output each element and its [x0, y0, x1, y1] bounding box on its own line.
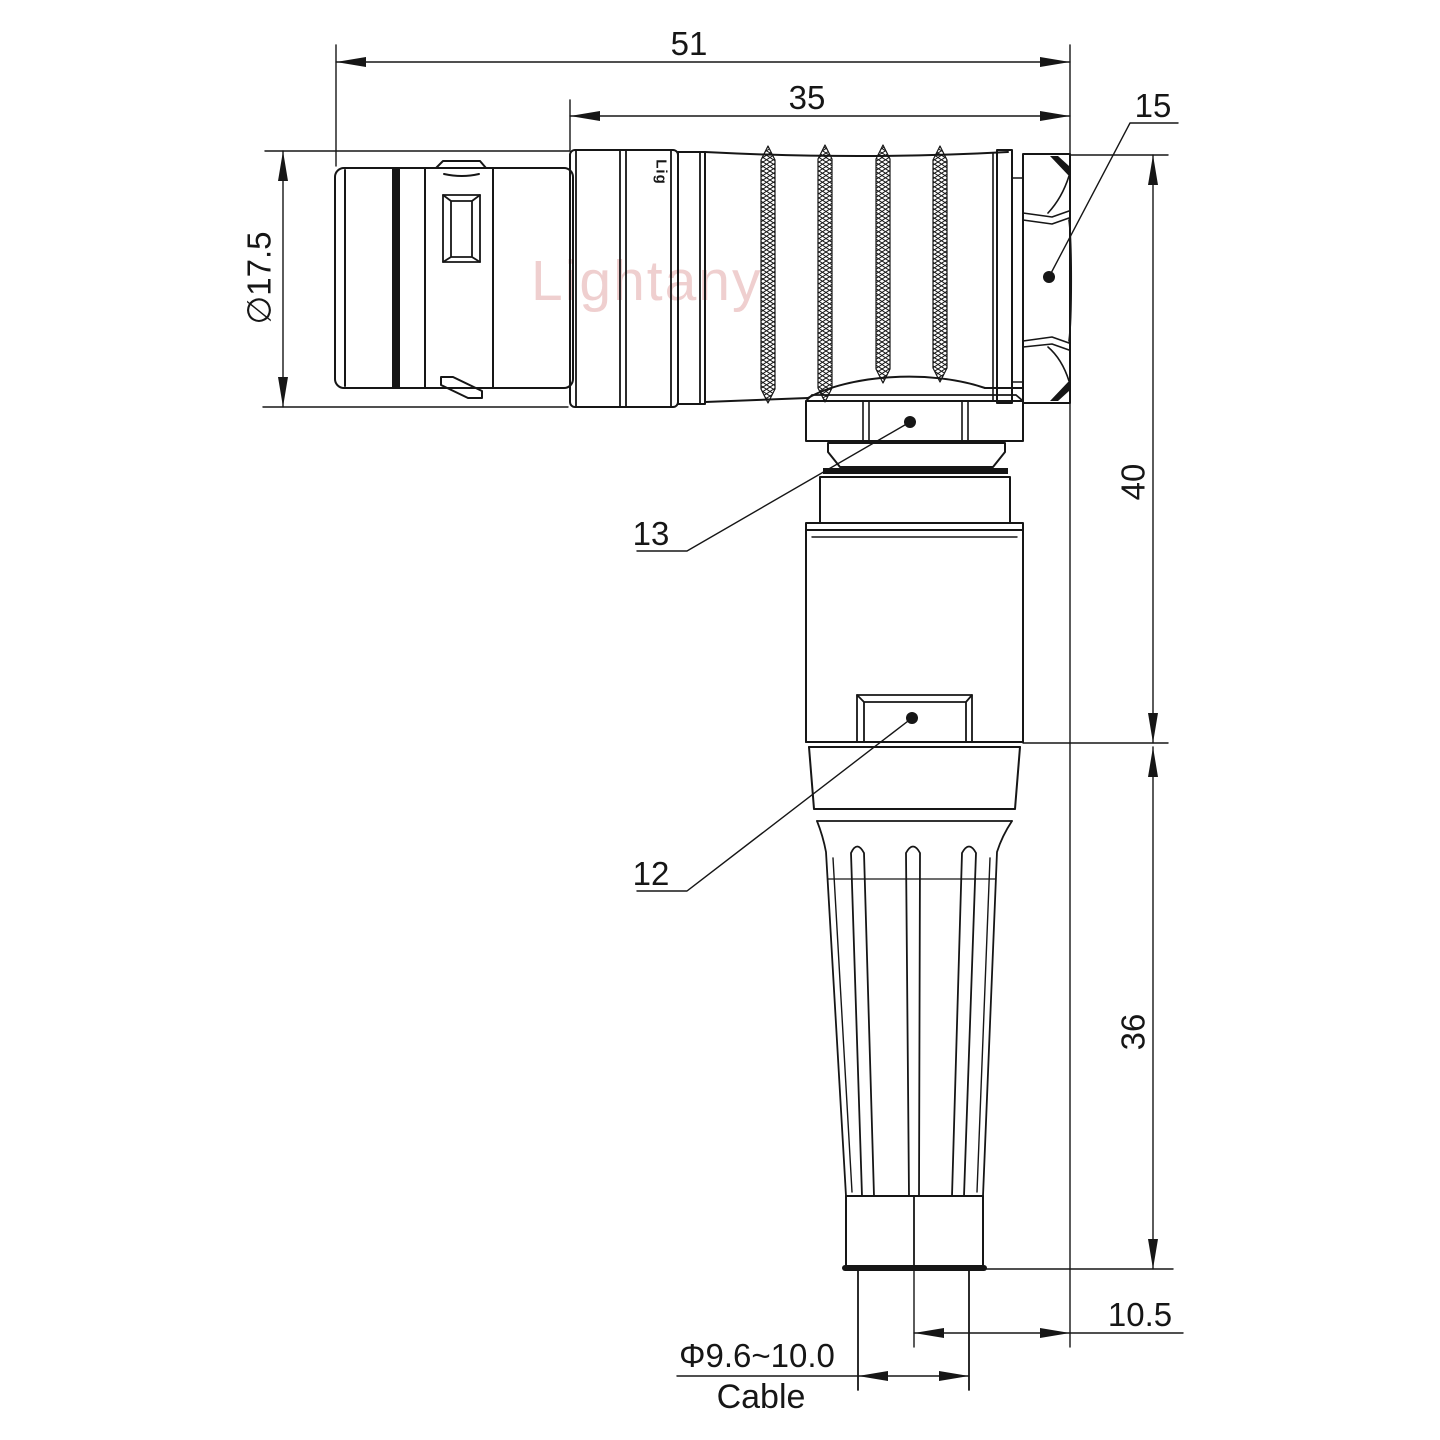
- grip-bottom-edge: [705, 398, 808, 402]
- boot-groove-3: [952, 847, 976, 1197]
- seal-ring: [823, 468, 1008, 474]
- cable-label: Cable: [717, 1378, 806, 1416]
- dim-label-lower-height: 36: [1115, 1014, 1152, 1051]
- hex-backnut: [997, 150, 1071, 403]
- callout-12-leader: [637, 712, 918, 891]
- technical-drawing-canvas: Lightany: [0, 0, 1440, 1440]
- washer: [997, 150, 1012, 403]
- callout-label-15: 15: [1135, 87, 1172, 124]
- hex-chamfer-top: [1050, 156, 1069, 176]
- connector-dimension-drawing: Lightany: [0, 0, 1440, 1440]
- dim-label-overall-length: 51: [671, 25, 708, 62]
- coupling-nut: [806, 395, 1023, 441]
- drawing-lines: Lig: [241, 25, 1184, 1416]
- boot-right-edge: [983, 821, 1012, 1196]
- watermark-text: Lightany: [531, 249, 763, 313]
- knurl-bands: [761, 145, 947, 403]
- boot-groove-1: [851, 847, 874, 1197]
- boot-groove-2: [906, 847, 920, 1197]
- dim-label-cable-offset: 10.5: [1108, 1296, 1172, 1333]
- dim-label-rear-length: 35: [789, 79, 826, 116]
- hex-chamfer-bottom: [1050, 381, 1069, 401]
- dimension-36: [1148, 747, 1158, 1269]
- dim-label-upper-height: 40: [1115, 464, 1152, 501]
- dim-label-cable-diameter: Φ9.6~10.0: [679, 1337, 835, 1374]
- dimension-40: [1148, 155, 1158, 743]
- callout-label-13: 13: [633, 515, 670, 552]
- hex-facet-upper: [1023, 211, 1069, 224]
- dimension-lines: [263, 45, 1183, 1381]
- cable-gland: [809, 747, 1020, 821]
- callout-15-leader: [1043, 123, 1178, 283]
- hex-facet-lower: [1023, 337, 1069, 350]
- strain-relief-boot: [817, 821, 1012, 1196]
- body-collar: [820, 443, 1010, 523]
- boot-ferrule: [845, 1196, 984, 1268]
- grip-top-edge: [705, 152, 1008, 156]
- shell-engraving-text: Lig: [653, 159, 670, 185]
- latch-window: [443, 195, 480, 262]
- callout-label-12: 12: [633, 855, 670, 892]
- dim-label-shell-diameter: ∅17.5: [241, 232, 278, 325]
- dimension-17-5: [278, 151, 288, 407]
- ext-diameter: [263, 151, 570, 407]
- sleeve-slot-band: [392, 169, 400, 387]
